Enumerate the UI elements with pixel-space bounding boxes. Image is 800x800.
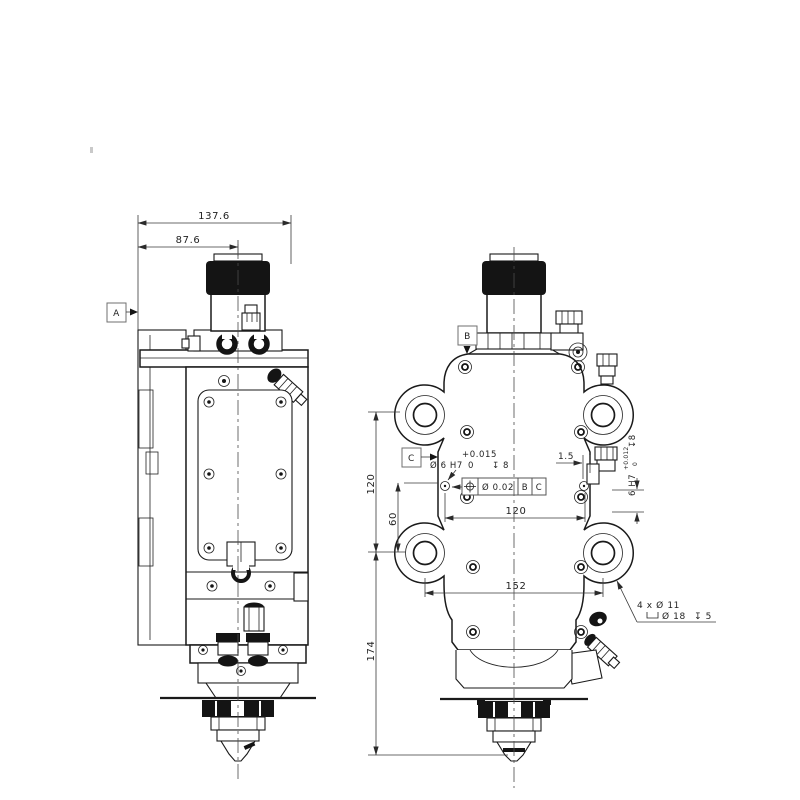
counterbore-diameter: Ø 18 [662,611,686,622]
datum-c-label: C [408,454,415,464]
dim-hole-horizontal-spacing-value: 120 [506,506,527,517]
technical-drawing-canvas: 137.6 87.6 A B C [0,0,800,800]
dim-side-hole-offset-value: 1.5 [558,452,574,462]
side-view-top-connector [242,305,260,330]
counterbore-icon [647,612,658,618]
side-view-nut-fitting [246,633,270,667]
datum-b-label: B [464,332,471,342]
dim-nozzle-tip-distance-value: 174 [366,641,377,662]
side-view-back-plate [138,330,186,645]
dim-lug-horizontal-spacing-value: 152 [506,581,527,592]
datum-a-triangle-icon [130,309,138,316]
fcf-datum-secondary: C [536,483,543,493]
dowel-callout-tol-lower: 0 [468,461,474,471]
dim-overall-width-value: 137.6 [198,211,230,222]
side-callout-tol-upper: +0.012 [623,447,630,470]
dim-dowel-vertical-offset-value: 60 [388,512,399,526]
side-view-access-panel [198,390,292,560]
dim-centerline-offset: 87.6 [138,235,238,256]
datum-c-triangle-icon [430,454,438,461]
dowel-callout-diameter: Ø 6 H7 [430,460,463,471]
dowel-callout-depth: ↧ 8 [492,461,509,471]
datum-a: A [107,303,138,322]
front-view-mid-side-fitting [587,447,617,484]
side-callout-tol-lower: 0 [632,462,639,466]
front-view-upper-side-fitting [597,354,617,384]
registration-mark [90,147,93,153]
side-callout-size: 6 H7 [628,474,638,496]
dim-lug-vertical-spacing-value: 120 [366,474,377,495]
fcf-datum-primary: B [522,483,528,493]
mounting-hole-note: 4 x Ø 11 Ø 18 ↧ 5 [617,581,716,622]
side-view-nut-fitting [216,633,240,667]
side-view-tube-fitting [244,603,264,632]
side-view [138,254,316,761]
feature-control-frame: Ø 0.02 B C [452,478,546,495]
dowel-callout-tol-upper: +0.015 [462,450,497,460]
datum-b: B [458,326,477,354]
mounting-hole-quantity: 4 x Ø 11 [637,600,680,611]
dim-centerline-offset-value: 87.6 [176,235,201,246]
datum-a-label: A [113,309,120,319]
drawing-sheet: 137.6 87.6 A B C [0,0,800,800]
fcf-tolerance-value: Ø 0.02 [482,482,514,493]
counterbore-depth: ↧ 5 [694,612,712,622]
side-callout-depth: ↧8 [628,434,638,448]
